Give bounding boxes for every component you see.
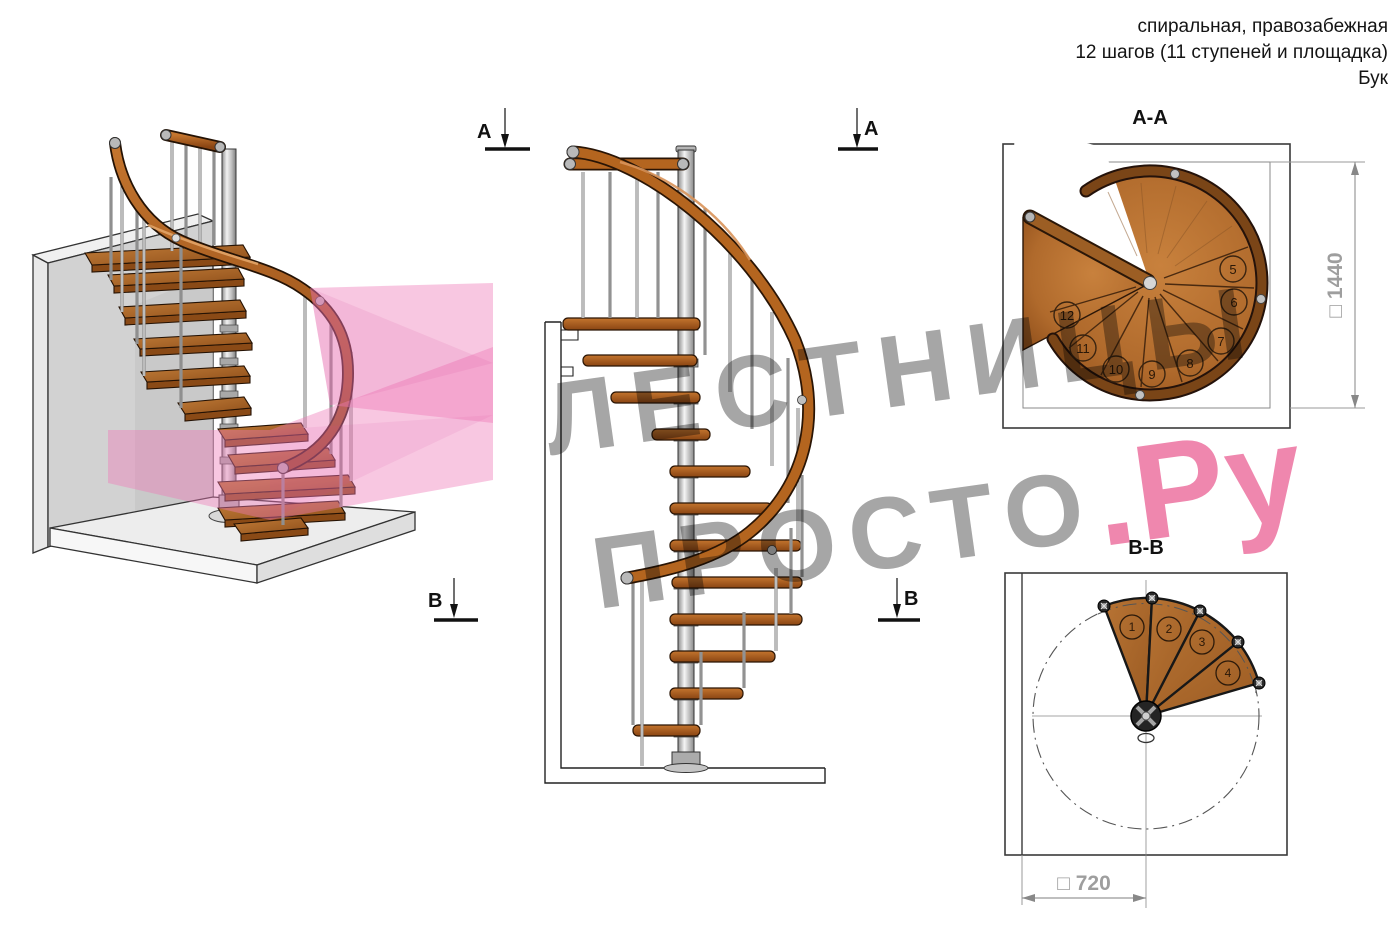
bb-step-4: 4 — [1225, 666, 1232, 680]
marker-a-left-label: А — [477, 121, 491, 143]
aa-step-8: 8 — [1186, 356, 1193, 371]
aa-step-7: 7 — [1217, 334, 1224, 349]
marker-b-right-label: В — [904, 588, 918, 610]
section-marker-b-left: В — [428, 578, 478, 620]
aa-title: А-А — [1132, 107, 1168, 129]
bb-step-2: 2 — [1166, 622, 1173, 636]
aa-step-5: 5 — [1229, 262, 1236, 277]
elevation-view: А А В В — [420, 100, 950, 810]
bb-dimension: □ 720 — [1022, 855, 1146, 905]
section-marker-a-right: А — [838, 108, 878, 149]
bb-dimension-label: □ 720 — [1057, 872, 1111, 895]
aa-step-11: 11 — [1076, 341, 1090, 356]
bb-title: В-В — [1128, 537, 1164, 559]
header-type: спиральная, правозабежная — [1075, 14, 1388, 40]
section-marker-a-left: А — [477, 108, 530, 149]
bb-step-3: 3 — [1199, 635, 1206, 649]
marker-b-left-label: В — [428, 590, 442, 612]
aa-step-6: 6 — [1230, 295, 1237, 310]
section-marker-b-right: В — [878, 578, 920, 620]
aa-step-10: 10 — [1109, 362, 1123, 377]
aa-dimension-label: □ 1440 — [1324, 252, 1347, 317]
section-bb-view: В-В 1 2 3 4 — [990, 530, 1400, 930]
drawing-header: спиральная, правозабежная 12 шагов (11 с… — [1075, 14, 1388, 92]
section-aa-view: А-А — [990, 100, 1400, 445]
aa-step-9: 9 — [1148, 367, 1155, 382]
bb-step-1: 1 — [1129, 620, 1136, 634]
header-steps: 12 шагов (11 ступеней и площадка) — [1075, 40, 1388, 66]
aa-step-12: 12 — [1060, 308, 1074, 323]
header-material: Бук — [1075, 66, 1388, 92]
marker-a-right-label: А — [864, 118, 878, 140]
